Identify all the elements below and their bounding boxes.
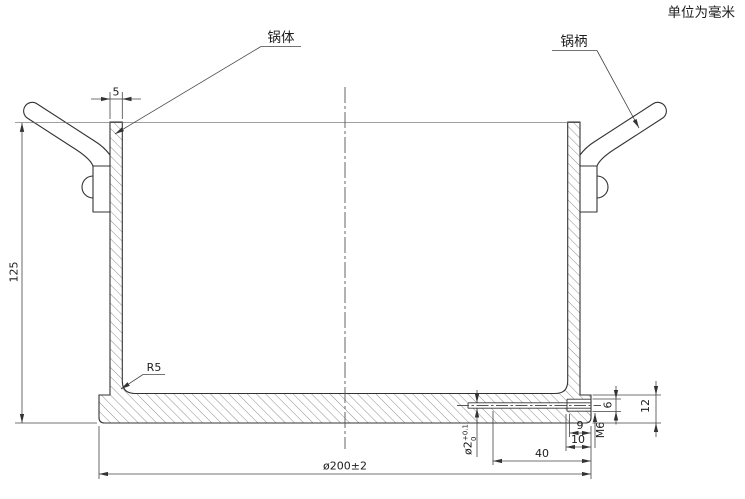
dim-wall-thickness-value: 5 [113,86,120,99]
pot-section-drawing: 5 125 ø200±2 40 9 10 M6 [0,0,745,499]
dim-small-hole-tol-minus: 0 [470,437,478,441]
label-pot-body: 锅体 [115,30,301,134]
dim-thread-depth-value: 9 [577,419,584,432]
dim-small-hole-value: ø2 [462,441,475,455]
dim-bottom-thickness-value: 12 [639,399,652,413]
units-note: 单位为毫米 [668,4,736,21]
left-rivet [82,176,93,198]
dim-thread-diameter-value: 6 [602,402,615,409]
pot-handle-label: 锅柄 [561,34,588,50]
dim-wall-thickness: 5 [91,86,141,120]
pot-body-label: 锅体 [268,30,295,46]
dim-small-hole-tol-plus: +0.1 [462,424,470,441]
thread-label: M6 [594,422,607,439]
dim-hole-depth-value: 10 [571,433,585,446]
dim-height-value: 125 [8,262,21,283]
engineering-drawing-page: 5 125 ø200±2 40 9 10 M6 [0,0,745,499]
label-corner-radius: R5 [121,361,165,389]
right-rivet [597,176,608,198]
corner-radius-label: R5 [147,361,162,374]
label-pot-handle: 锅柄 [552,34,639,128]
label-thread: M6 [594,413,607,448]
left-handle [24,102,110,212]
dim-hole-length-value: 40 [535,447,549,460]
dim-outer-diameter-value: ø200±2 [323,460,367,473]
right-handle [580,102,666,212]
